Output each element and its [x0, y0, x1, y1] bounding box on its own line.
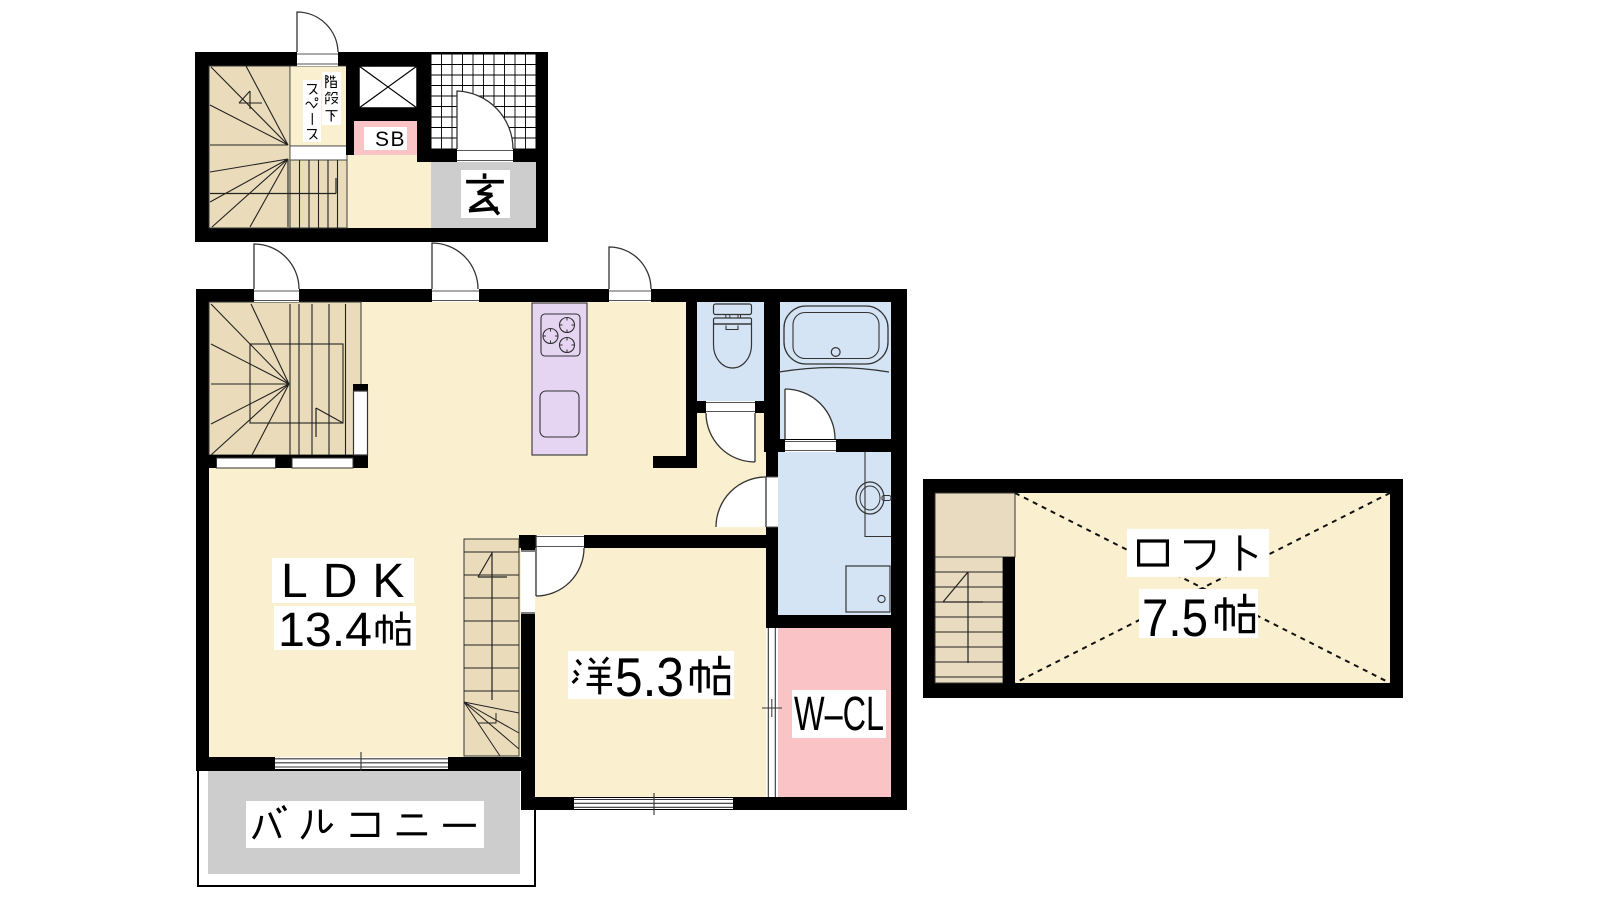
svg-text:SB: SB	[375, 128, 406, 151]
svg-text:7.5: 7.5	[1142, 589, 1208, 648]
svg-text:5.3: 5.3	[615, 646, 684, 708]
svg-text:LDK: LDK	[281, 555, 419, 608]
svg-text:W–CL: W–CL	[794, 688, 884, 741]
svg-text:13.4: 13.4	[278, 604, 372, 657]
